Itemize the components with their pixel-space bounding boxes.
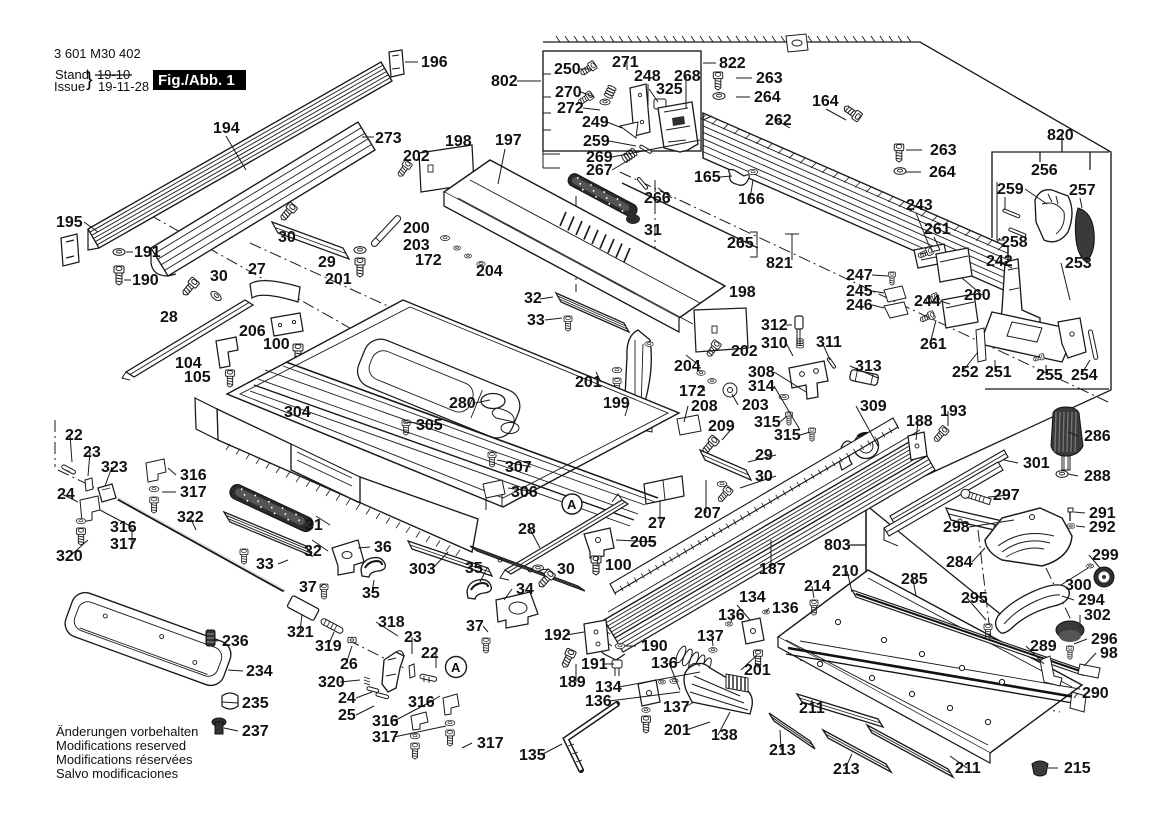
svg-text:802: 802 xyxy=(491,73,518,90)
svg-text:253: 253 xyxy=(1065,255,1092,272)
svg-text:37: 37 xyxy=(466,618,484,635)
svg-text:310: 310 xyxy=(761,335,788,352)
svg-text:100: 100 xyxy=(263,336,290,353)
svg-text:192: 192 xyxy=(544,627,571,644)
svg-text:262: 262 xyxy=(765,112,792,129)
svg-text:Issue: Issue xyxy=(54,79,85,94)
svg-text:257: 257 xyxy=(1069,182,1096,199)
svg-text:250: 250 xyxy=(554,61,581,78)
svg-text:315: 315 xyxy=(774,427,801,444)
svg-text:323: 323 xyxy=(101,459,128,476)
svg-text:301: 301 xyxy=(1023,455,1050,472)
svg-text:254: 254 xyxy=(1071,367,1098,384)
svg-text:270: 270 xyxy=(555,84,582,101)
svg-text:28: 28 xyxy=(160,309,178,326)
svg-text:190: 190 xyxy=(641,638,668,655)
svg-text:35: 35 xyxy=(362,585,380,602)
svg-text:260: 260 xyxy=(964,287,991,304)
svg-text:197: 197 xyxy=(495,132,522,149)
svg-text:24: 24 xyxy=(57,486,75,503)
svg-text:202: 202 xyxy=(731,343,758,360)
svg-text:306: 306 xyxy=(511,484,538,501)
svg-text:30: 30 xyxy=(557,561,575,578)
svg-text:196: 196 xyxy=(421,54,448,71)
svg-text:261: 261 xyxy=(924,221,951,238)
svg-text:264: 264 xyxy=(929,164,956,181)
svg-text:320: 320 xyxy=(56,548,83,565)
svg-text:22: 22 xyxy=(421,645,439,662)
svg-text:314: 314 xyxy=(748,378,775,395)
svg-text:33: 33 xyxy=(527,312,545,329)
svg-text:190: 190 xyxy=(132,272,159,289)
svg-text:322: 322 xyxy=(177,509,204,526)
svg-text:272: 272 xyxy=(557,100,584,117)
svg-text:28: 28 xyxy=(518,521,536,538)
svg-text:822: 822 xyxy=(719,55,746,72)
svg-text:26: 26 xyxy=(340,656,358,673)
svg-text:316: 316 xyxy=(180,467,207,484)
svg-text:191: 191 xyxy=(134,244,161,261)
svg-text:292: 292 xyxy=(1089,519,1116,536)
svg-text:198: 198 xyxy=(729,284,756,301)
svg-text:263: 263 xyxy=(756,70,783,87)
svg-text:252: 252 xyxy=(952,364,979,381)
svg-text:297: 297 xyxy=(993,487,1020,504)
svg-text:307: 307 xyxy=(505,459,532,476)
svg-text:273: 273 xyxy=(375,130,402,147)
svg-text:165: 165 xyxy=(694,169,721,186)
svg-text:242: 242 xyxy=(986,253,1013,270)
svg-text:290: 290 xyxy=(1082,685,1109,702)
svg-text:189: 189 xyxy=(559,674,586,691)
svg-text:303: 303 xyxy=(409,561,436,578)
svg-text:30: 30 xyxy=(210,268,228,285)
svg-text:280: 280 xyxy=(449,395,476,412)
svg-text:105: 105 xyxy=(184,369,211,386)
svg-text:311: 311 xyxy=(816,334,842,351)
svg-text:249: 249 xyxy=(582,114,609,131)
svg-text:34: 34 xyxy=(516,581,534,598)
svg-text:267: 267 xyxy=(586,162,613,179)
svg-text:234: 234 xyxy=(246,663,273,680)
svg-text:Modifications réservées: Modifications réservées xyxy=(56,752,193,767)
svg-text:Fig./Abb. 1: Fig./Abb. 1 xyxy=(158,72,235,89)
svg-text:201: 201 xyxy=(664,722,691,739)
svg-text:Salvo modificaciones: Salvo modificaciones xyxy=(56,766,179,781)
svg-text:187: 187 xyxy=(759,561,786,578)
svg-text:136: 136 xyxy=(718,607,745,624)
svg-text:30: 30 xyxy=(755,468,773,485)
svg-text:211: 211 xyxy=(799,700,825,717)
svg-text:195: 195 xyxy=(56,214,83,231)
svg-text:23: 23 xyxy=(404,629,422,646)
svg-text:33: 33 xyxy=(256,556,274,573)
svg-text:137: 137 xyxy=(663,699,690,716)
svg-text:35: 35 xyxy=(465,560,483,577)
svg-text:820: 820 xyxy=(1047,127,1074,144)
svg-text:36: 36 xyxy=(374,539,392,556)
svg-text:Modifications reserved: Modifications reserved xyxy=(56,738,186,753)
svg-text:258: 258 xyxy=(1001,234,1028,251)
svg-text:172: 172 xyxy=(415,252,442,269)
svg-text:319: 319 xyxy=(315,638,342,655)
svg-text:202: 202 xyxy=(403,148,430,165)
svg-text:3 601 M30 402: 3 601 M30 402 xyxy=(54,46,141,61)
svg-text:317: 317 xyxy=(180,484,207,501)
svg-text:194: 194 xyxy=(213,120,240,137)
svg-text:136: 136 xyxy=(772,600,799,617)
svg-text:136: 136 xyxy=(651,655,678,672)
svg-text:210: 210 xyxy=(832,563,859,580)
svg-text:312: 312 xyxy=(761,317,788,334)
svg-text:27: 27 xyxy=(248,261,266,278)
svg-text:25: 25 xyxy=(338,707,356,724)
svg-text:100: 100 xyxy=(605,557,632,574)
svg-text:259: 259 xyxy=(997,181,1024,198)
svg-text:236: 236 xyxy=(222,633,249,650)
svg-text:204: 204 xyxy=(476,263,503,280)
svg-text:134: 134 xyxy=(739,589,766,606)
svg-text:166: 166 xyxy=(738,191,765,208)
svg-text:321: 321 xyxy=(287,624,314,641)
svg-text:313: 313 xyxy=(855,358,882,375)
svg-text:244: 244 xyxy=(914,293,941,310)
svg-text:317: 317 xyxy=(372,729,399,746)
svg-text:19-11-28: 19-11-28 xyxy=(98,79,149,94)
svg-text:320: 320 xyxy=(318,674,345,691)
svg-text:235: 235 xyxy=(242,695,269,712)
svg-text:284: 284 xyxy=(946,554,973,571)
svg-text:206: 206 xyxy=(239,323,266,340)
svg-text:256: 256 xyxy=(1031,162,1058,179)
svg-text:32: 32 xyxy=(304,543,322,560)
svg-text:204: 204 xyxy=(674,358,701,375)
svg-text:317: 317 xyxy=(110,536,137,553)
svg-text:304: 304 xyxy=(284,404,311,421)
svg-text:Änderungen vorbehalten: Änderungen vorbehalten xyxy=(56,724,198,739)
svg-text:37: 37 xyxy=(299,579,317,596)
svg-text:316: 316 xyxy=(408,694,435,711)
svg-text:A: A xyxy=(451,660,461,675)
svg-text:298: 298 xyxy=(943,519,970,536)
svg-text:98: 98 xyxy=(1100,645,1118,662)
svg-text:263: 263 xyxy=(930,142,957,159)
svg-text:31: 31 xyxy=(305,517,323,534)
svg-text:193: 193 xyxy=(940,403,967,420)
svg-text:27: 27 xyxy=(648,515,666,532)
svg-text:}: } xyxy=(86,69,93,91)
svg-text:22: 22 xyxy=(65,427,83,444)
svg-text:285: 285 xyxy=(901,571,928,588)
svg-text:821: 821 xyxy=(766,255,793,272)
svg-text:191: 191 xyxy=(581,656,608,673)
svg-text:325: 325 xyxy=(656,81,683,98)
svg-text:246: 246 xyxy=(846,297,873,314)
svg-text:30: 30 xyxy=(278,229,296,246)
svg-text:265: 265 xyxy=(727,235,754,252)
svg-text:295: 295 xyxy=(961,590,988,607)
svg-text:205: 205 xyxy=(630,534,657,551)
svg-text:299: 299 xyxy=(1092,547,1119,564)
svg-text:264: 264 xyxy=(754,89,781,106)
svg-text:302: 302 xyxy=(1084,607,1111,624)
svg-text:211: 211 xyxy=(955,760,981,777)
svg-text:288: 288 xyxy=(1084,468,1111,485)
svg-text:137: 137 xyxy=(697,628,724,645)
svg-text:201: 201 xyxy=(325,271,352,288)
svg-text:198: 198 xyxy=(445,133,472,150)
svg-text:215: 215 xyxy=(1064,760,1091,777)
svg-text:237: 237 xyxy=(242,723,269,740)
svg-text:32: 32 xyxy=(524,290,542,307)
svg-text:213: 213 xyxy=(833,761,860,778)
svg-text:316: 316 xyxy=(110,519,137,536)
svg-text:29: 29 xyxy=(755,447,773,464)
svg-text:A: A xyxy=(567,497,577,512)
svg-text:199: 199 xyxy=(603,395,630,412)
svg-text:255: 255 xyxy=(1036,367,1063,384)
svg-text:31: 31 xyxy=(644,222,662,239)
svg-text:266: 266 xyxy=(644,190,671,207)
svg-text:209: 209 xyxy=(708,418,735,435)
svg-text:803: 803 xyxy=(824,537,851,554)
svg-text:243: 243 xyxy=(906,197,933,214)
svg-text:316: 316 xyxy=(372,713,399,730)
svg-text:29: 29 xyxy=(318,254,336,271)
svg-text:247: 247 xyxy=(846,267,873,284)
svg-text:207: 207 xyxy=(694,505,721,522)
svg-text:188: 188 xyxy=(906,413,933,430)
svg-text:24: 24 xyxy=(338,690,356,707)
svg-text:201: 201 xyxy=(575,374,602,391)
svg-text:138: 138 xyxy=(711,727,738,744)
svg-text:164: 164 xyxy=(812,93,839,110)
svg-text:136: 136 xyxy=(585,693,612,710)
svg-text:208: 208 xyxy=(691,398,718,415)
svg-text:214: 214 xyxy=(804,578,831,595)
svg-text:23: 23 xyxy=(83,444,101,461)
svg-text:289: 289 xyxy=(1030,638,1057,655)
svg-text:201: 201 xyxy=(744,662,771,679)
svg-text:318: 318 xyxy=(378,614,405,631)
svg-text:259: 259 xyxy=(583,133,610,150)
svg-text:200: 200 xyxy=(403,220,430,237)
svg-text:203: 203 xyxy=(742,397,769,414)
svg-text:213: 213 xyxy=(769,742,796,759)
svg-text:317: 317 xyxy=(477,735,504,752)
svg-text:135: 135 xyxy=(519,747,546,764)
svg-text:261: 261 xyxy=(920,336,947,353)
svg-text:251: 251 xyxy=(985,364,1012,381)
svg-text:305: 305 xyxy=(416,417,443,434)
svg-text:309: 309 xyxy=(860,398,887,415)
svg-text:286: 286 xyxy=(1084,428,1111,445)
